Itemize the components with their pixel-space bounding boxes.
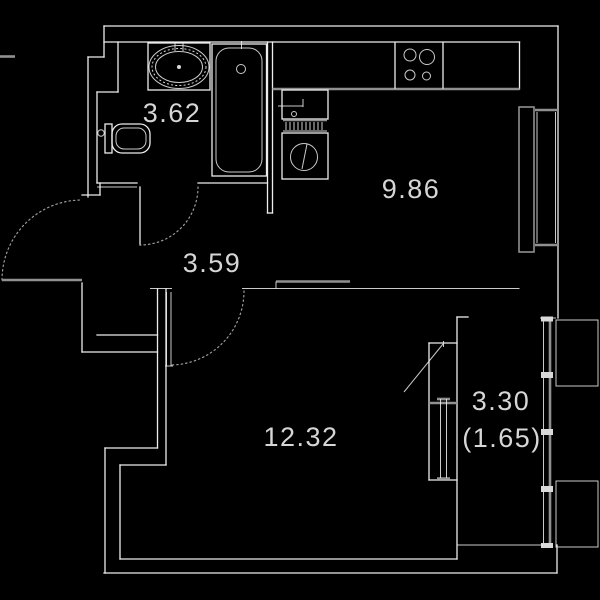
kitchen-sink-icon (278, 90, 328, 131)
room-door-icon (165, 291, 244, 366)
room-area-label: 12.32 (263, 422, 338, 452)
stove-icon (395, 43, 443, 88)
area-labels: 3.62 9.86 3.59 12.32 3.30 (1.65) (143, 98, 542, 453)
entrance-door-icon (2, 200, 82, 280)
kitchen-area-label: 9.86 (382, 174, 441, 204)
balcony-door-window-icon (404, 341, 457, 480)
floor-plan: 3.62 9.86 3.59 12.32 3.30 (1.65) (0, 0, 600, 600)
kitchen-window-icon (519, 107, 558, 252)
washing-machine-icon (282, 133, 328, 179)
bathtub-icon (212, 41, 267, 176)
outer-walls (0, 26, 558, 573)
floor-plan-drawing: 3.62 9.86 3.59 12.32 3.30 (1.65) (0, 0, 600, 600)
balcony-area-label: 3.30 (472, 386, 531, 416)
bathroom-door-icon (140, 187, 198, 245)
toilet-icon (98, 124, 150, 153)
balcony-reduced-area-label: (1.65) (462, 423, 542, 453)
bathroom-area-label: 3.62 (143, 98, 202, 128)
hallway-area-label: 3.59 (183, 248, 242, 278)
bathroom-sink-icon (148, 43, 210, 90)
